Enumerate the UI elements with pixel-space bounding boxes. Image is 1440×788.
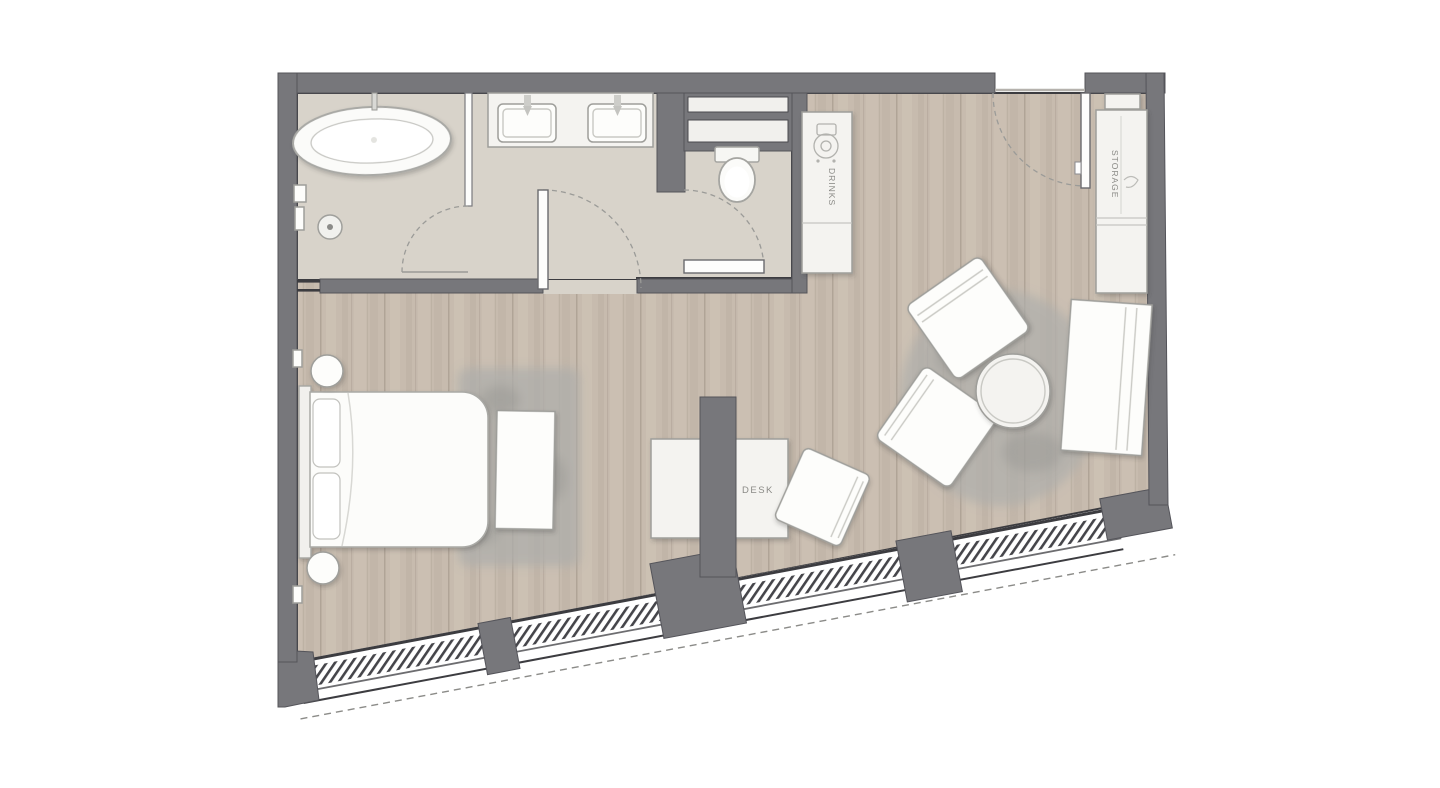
storage-top-shelf: [1105, 94, 1140, 109]
shower-valve: [295, 207, 304, 230]
structural-column: [700, 397, 736, 577]
daybed-sofa: [1061, 299, 1152, 455]
round-table: [976, 354, 1050, 428]
shower-control-box: [294, 185, 306, 202]
right-wall: [1146, 73, 1168, 505]
top-wall-left: [280, 73, 995, 93]
pillow: [313, 399, 340, 467]
wall-lamp: [293, 586, 302, 603]
nightstand-top: [311, 355, 343, 387]
wc-divider-wall: [657, 93, 685, 192]
pillow: [313, 473, 340, 539]
wall-lamp: [293, 350, 302, 367]
floor-plan-page: DRINKS STORAGE DESK: [0, 0, 1440, 788]
floor-plan-drawing: DRINKS STORAGE DESK: [0, 0, 1440, 788]
bathroom-door-threshold: [543, 280, 638, 294]
nightstand-bottom: [307, 552, 339, 584]
bathtub-faucet: [372, 93, 377, 110]
headboard: [299, 386, 311, 558]
door-handle: [1075, 162, 1081, 174]
storage-label: STORAGE: [1110, 150, 1120, 198]
storage-wardrobe: [1096, 94, 1147, 293]
vanity: [488, 93, 653, 147]
wall-shelf: [688, 120, 788, 142]
desk-label: DESK: [742, 485, 774, 496]
wc-front-wall: [637, 279, 807, 293]
bathroom-partition-wall: [320, 279, 543, 293]
drinks-cabinet: [802, 112, 852, 273]
shower-partition-line: [297, 289, 320, 292]
shower-partition-line: [297, 280, 320, 283]
wall-shelf: [688, 97, 788, 112]
bed-bench: [495, 411, 555, 530]
window-mullion: [896, 531, 962, 602]
bed: [299, 386, 488, 558]
drinks-label: DRINKS: [827, 168, 837, 206]
